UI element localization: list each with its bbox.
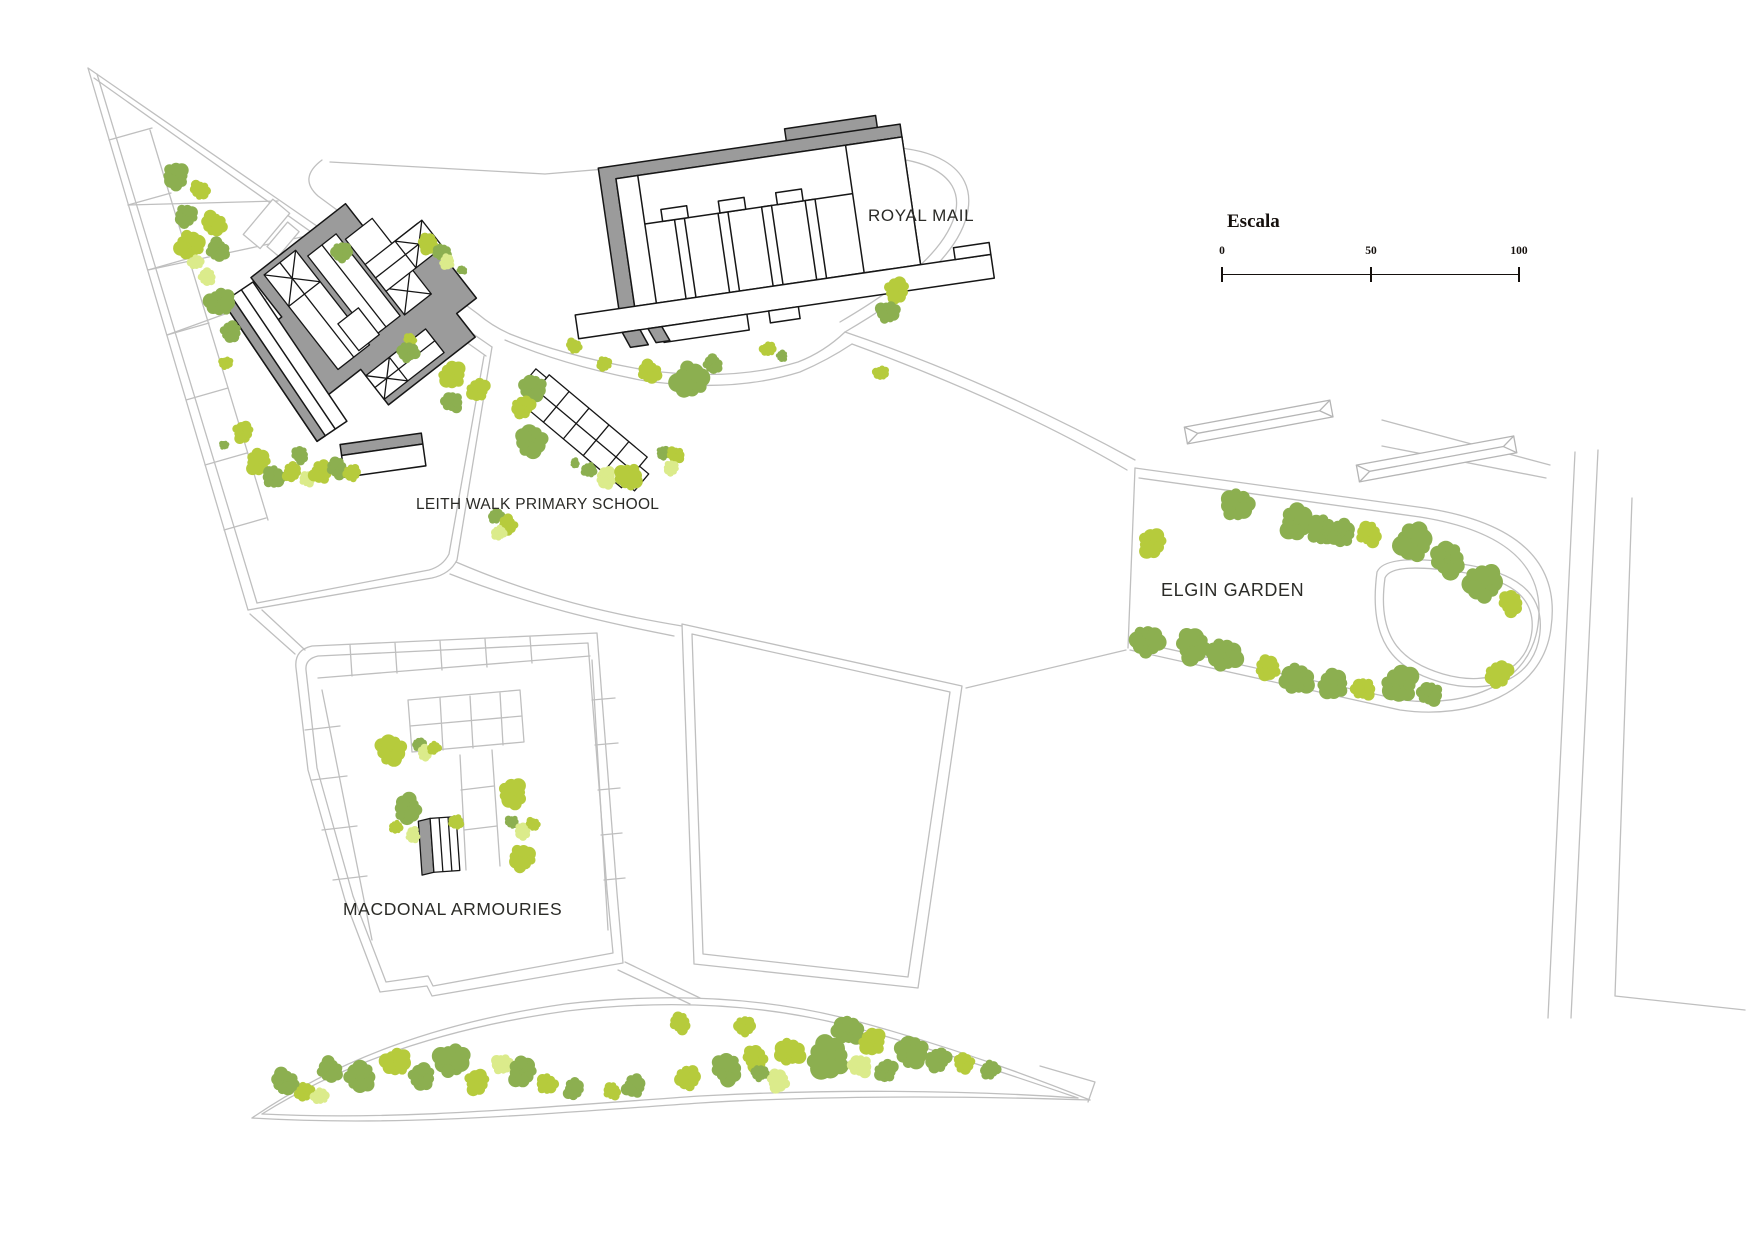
- garden-building-2: [1356, 436, 1516, 482]
- scale-tick-0: [1221, 267, 1223, 282]
- center-parcel: [682, 624, 962, 988]
- tree: [218, 357, 233, 370]
- site-plan: ROYAL MAIL LEITH WALK PRIMARY SCHOOL ELG…: [0, 0, 1754, 1240]
- tree: [621, 1073, 646, 1098]
- tree: [379, 1048, 411, 1076]
- tree: [571, 457, 580, 468]
- scale-tick-50: [1370, 267, 1372, 282]
- scale-num-50: 50: [1365, 245, 1377, 257]
- label-primary-school: LEITH WALK PRIMARY SCHOOL: [416, 496, 659, 514]
- tree: [1430, 541, 1465, 581]
- tree: [1256, 654, 1281, 681]
- tree: [925, 1048, 952, 1074]
- tree: [1350, 678, 1376, 700]
- tree: [432, 1043, 471, 1078]
- tree: [198, 267, 216, 286]
- scale-bar-title: Escala: [1227, 211, 1280, 233]
- garden-building-1: [1184, 400, 1333, 444]
- tree: [395, 792, 423, 825]
- tree: [219, 441, 229, 450]
- tree: [980, 1060, 1002, 1080]
- label-royal-mail: ROYAL MAIL: [868, 206, 974, 226]
- tree: [375, 734, 408, 766]
- site-plan-drawing: [0, 0, 1754, 1240]
- street-connectors: [250, 562, 700, 1004]
- tree: [774, 1038, 806, 1066]
- tree: [954, 1052, 976, 1075]
- tree: [203, 288, 235, 316]
- tree: [674, 1065, 701, 1091]
- tree: [232, 421, 253, 444]
- tree: [767, 1069, 790, 1094]
- armouries-parcel: [296, 633, 625, 996]
- tree: [427, 741, 442, 755]
- tree: [604, 1082, 622, 1100]
- tree: [670, 1012, 691, 1036]
- tree: [1279, 663, 1315, 694]
- tree: [596, 356, 612, 372]
- tree: [875, 301, 901, 324]
- tree: [1462, 564, 1504, 604]
- tree: [440, 392, 462, 413]
- tree: [515, 424, 548, 459]
- tree: [566, 338, 583, 354]
- label-elgin-garden: ELGIN GARDEN: [1161, 580, 1304, 601]
- royal-mail-building: [553, 102, 997, 355]
- tree: [511, 396, 536, 420]
- tree: [614, 464, 643, 491]
- tree: [537, 1073, 559, 1094]
- tree: [872, 366, 889, 380]
- tree: [664, 461, 679, 477]
- scale-num-100: 100: [1510, 245, 1527, 257]
- tree: [759, 341, 777, 356]
- garden-approach-road: [845, 332, 1135, 470]
- tree: [1356, 521, 1382, 549]
- tree: [712, 1053, 742, 1088]
- tree: [563, 1077, 584, 1100]
- tree: [438, 361, 465, 389]
- tree: [776, 350, 788, 363]
- tree: [464, 1069, 489, 1097]
- tree: [201, 210, 228, 237]
- tree: [457, 266, 468, 275]
- tree: [1139, 528, 1166, 559]
- tree: [206, 236, 230, 262]
- scale-num-0: 0: [1219, 245, 1225, 257]
- tree: [733, 1016, 756, 1037]
- tree: [499, 778, 526, 810]
- tree: [173, 230, 206, 259]
- tree: [1129, 626, 1167, 659]
- tree: [406, 826, 421, 843]
- tree: [1205, 639, 1244, 672]
- scale-tick-100: [1518, 267, 1520, 282]
- tree: [466, 378, 491, 401]
- tree: [317, 1055, 343, 1083]
- tree: [847, 1055, 872, 1078]
- tree: [1416, 682, 1442, 707]
- tree: [1317, 668, 1347, 699]
- tree: [874, 1059, 899, 1082]
- tree: [190, 180, 211, 200]
- tree: [408, 1062, 435, 1091]
- tree: [509, 845, 536, 873]
- tree: [1485, 660, 1515, 689]
- tree: [1392, 521, 1433, 562]
- label-macdonal-armouries: MACDONAL ARMOURIES: [343, 899, 562, 920]
- tree: [1381, 665, 1419, 702]
